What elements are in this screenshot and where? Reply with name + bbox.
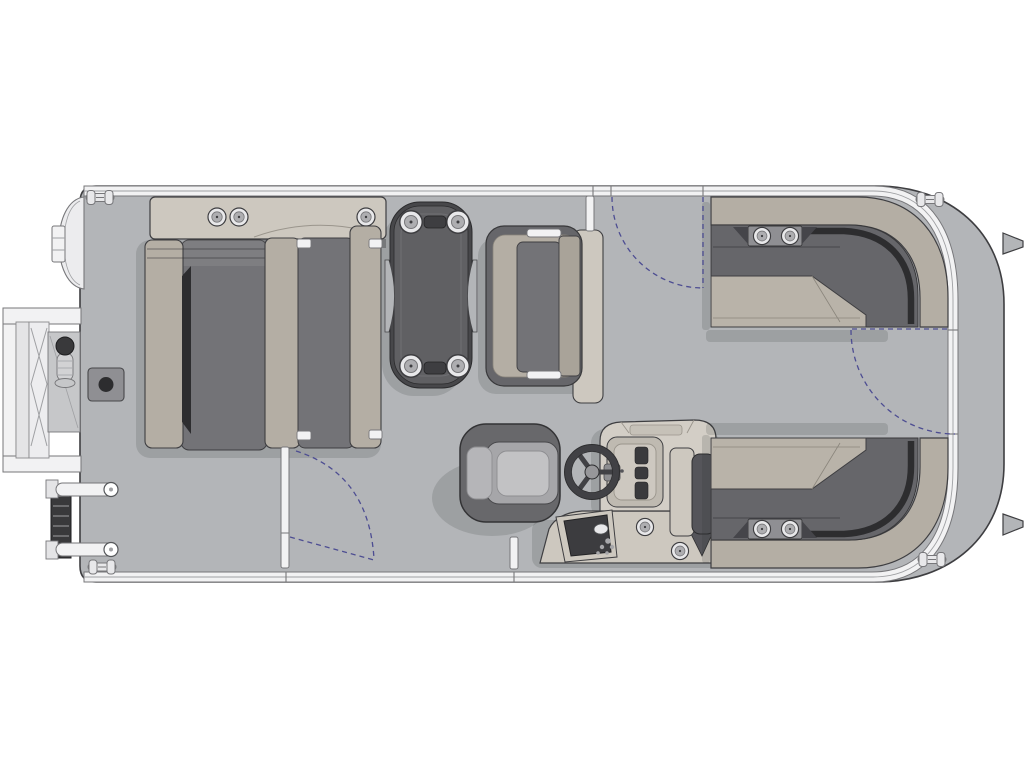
- bow-lounge: [145, 197, 386, 450]
- chair-seat-cushion: [497, 451, 549, 496]
- cup-holder: [400, 211, 423, 234]
- bench-cushion: [517, 242, 561, 372]
- companion-bench: [486, 226, 603, 403]
- cup-holder: [447, 211, 470, 234]
- helm-gate-post: [510, 537, 518, 569]
- console-side-panel: [670, 448, 694, 536]
- cup-holder: [400, 355, 423, 378]
- lounge-center-armrest: [265, 238, 300, 448]
- cup-holder: [636, 518, 653, 535]
- chair-back-pad: [467, 447, 492, 499]
- gauge-cluster: [635, 447, 648, 499]
- seat-hinge: [527, 371, 561, 379]
- cup-holder: [671, 542, 688, 559]
- cup-holder: [208, 208, 226, 226]
- cup-holder: [357, 208, 375, 226]
- captains-chair: [460, 424, 560, 522]
- tow-pylon-knob: [56, 337, 74, 355]
- lounge-cushion-port: [181, 240, 267, 450]
- cup-holder: [753, 227, 770, 244]
- stern-lounge-bottom: [702, 423, 948, 568]
- deck-latch-plate: [88, 368, 124, 401]
- port-gate-bar: [281, 447, 289, 568]
- cushion-bolster-accent: [182, 266, 191, 434]
- stern-lounge-top: [702, 197, 948, 342]
- lounge-back-panel: [350, 226, 381, 448]
- cup-holder: [447, 355, 470, 378]
- bow-gate-post: [586, 196, 594, 231]
- cocktail-table: [385, 202, 477, 388]
- nav-light-bracket: [52, 226, 65, 262]
- pontoon-floor-plan: [0, 0, 1024, 768]
- table-slot: [424, 216, 446, 228]
- lounge-cushion-aft-facing: [298, 238, 354, 448]
- seat-hinge: [527, 229, 561, 237]
- tow-pylon-stem: [57, 353, 73, 381]
- cup-holder: [781, 227, 798, 244]
- table-slot: [424, 362, 446, 374]
- lounge-backrest-port: [145, 240, 183, 448]
- bench-flip-bar: [559, 236, 580, 376]
- switch-panel: [564, 515, 611, 556]
- cup-holder: [230, 208, 248, 226]
